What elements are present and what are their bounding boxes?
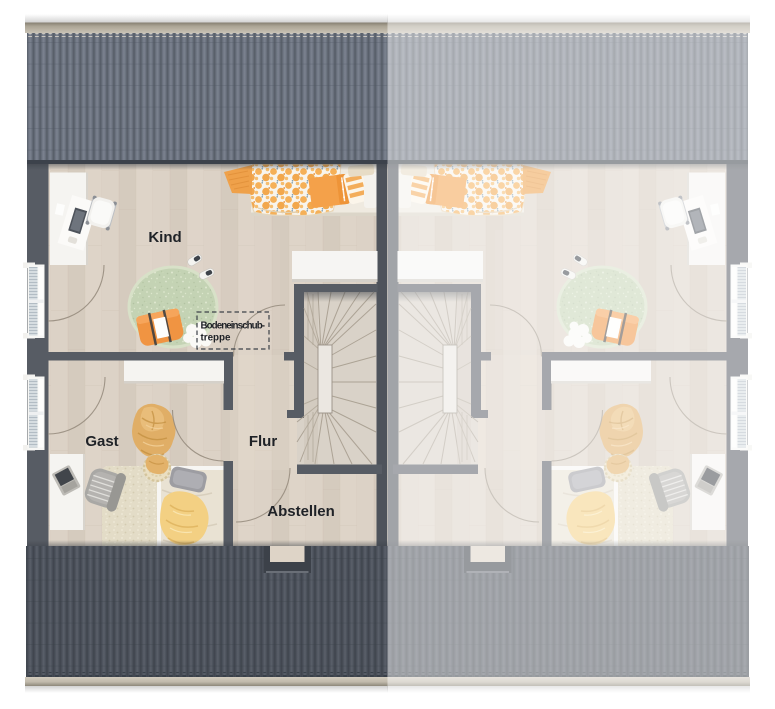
svg-text:Gast: Gast [85,433,118,450]
svg-text:Abstellen: Abstellen [267,503,335,520]
svg-text:treppe: treppe [201,333,231,344]
svg-text:Flur: Flur [249,433,277,450]
svg-text:Kind: Kind [148,229,181,246]
svg-text:Bodeneinschub-: Bodeneinschub- [201,321,266,332]
